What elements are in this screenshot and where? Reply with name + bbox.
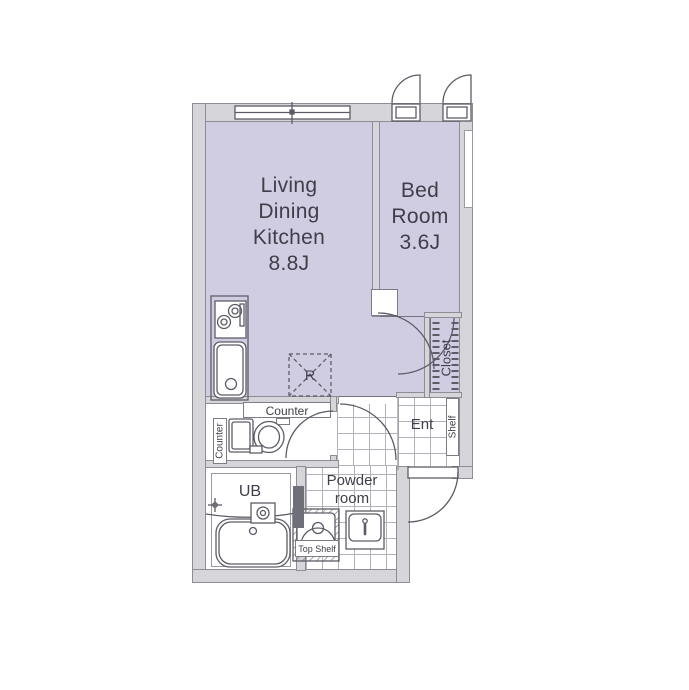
unit-bath-label: UB <box>226 483 274 501</box>
hall-tile-floor <box>337 404 397 466</box>
ldk-extension-floor <box>372 315 430 397</box>
counter-top-label: Counter <box>243 404 331 418</box>
bedroom-corner-notch <box>371 289 398 316</box>
outer-wall-top <box>192 103 473 122</box>
bath-door <box>293 486 304 528</box>
ldk-label: Living Dining Kitchen 8.8J <box>209 173 369 277</box>
toilet-counter-tab <box>276 418 290 425</box>
entrance-label: Ent <box>398 416 446 433</box>
bedroom-label: Bed Room 3.6J <box>379 178 461 256</box>
counter-side-label: Counter <box>215 423 226 459</box>
powder-room-label: Powder room <box>310 472 394 508</box>
top-shelf-label: Top Shelf <box>295 544 339 554</box>
shelf-label: Shelf <box>447 416 458 439</box>
toilet-hall-wall-upper <box>330 396 337 412</box>
closet-top-wall <box>424 312 462 318</box>
entrance-wall-stub <box>452 466 473 479</box>
floor-plan: Living Dining Kitchen 8.8J Bed Room 3.6J… <box>0 0 689 690</box>
closet-left-wall <box>424 312 430 398</box>
refrigerator-label: R <box>289 367 331 383</box>
outer-wall-left <box>192 103 206 583</box>
closet-label: Closet <box>439 340 454 377</box>
outer-wall-bottom <box>192 569 410 583</box>
entry-door <box>408 467 458 522</box>
wall-niche <box>464 130 473 208</box>
powder-room-outer-wall-right <box>396 466 410 583</box>
